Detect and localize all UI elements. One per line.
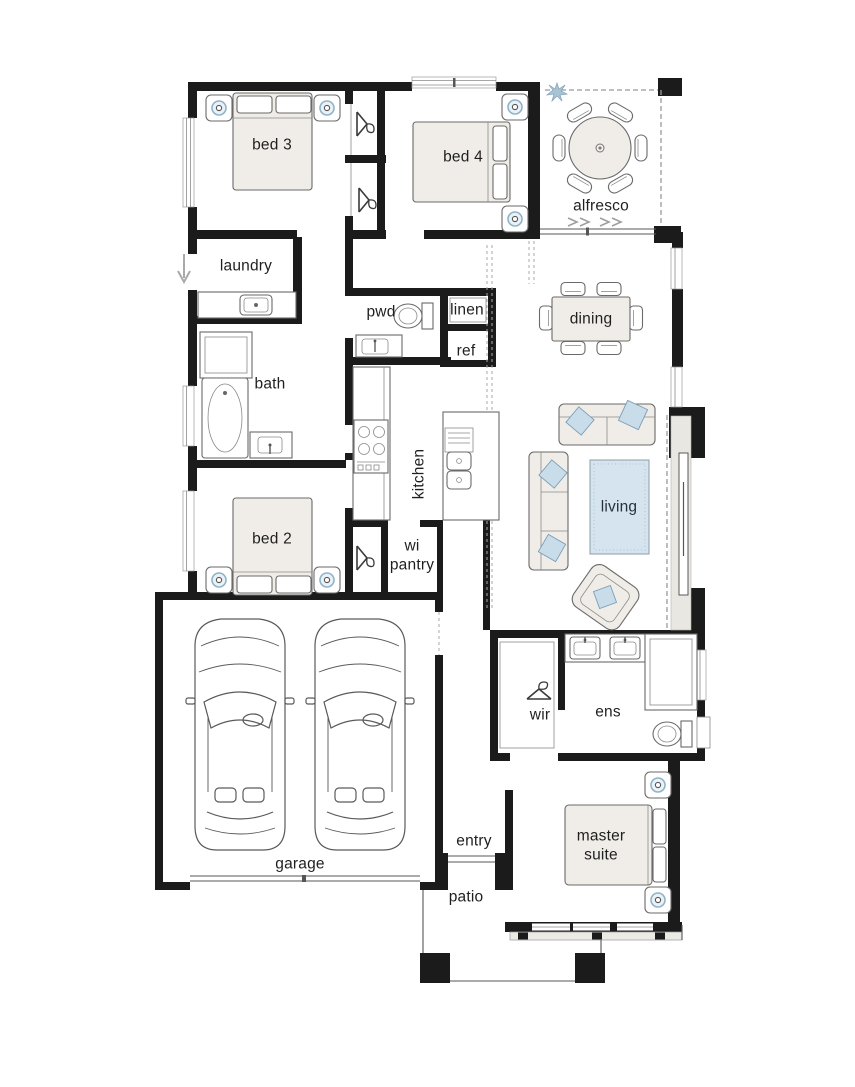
stacker-door [671,416,691,630]
bedside-table [314,567,340,593]
master-suite-line1: master [577,827,626,846]
room-label-laundry: laundry [220,256,272,275]
room-label-dining: dining [570,309,613,328]
bedside-table [645,887,671,913]
room-label-pwd: pwd [366,302,395,321]
room-label-kitchen: kitchen [409,449,428,500]
room-label-ref: ref [457,341,476,360]
chaise-sofa [529,452,568,570]
laundry-bench [198,292,296,318]
bath-tub [202,378,248,458]
armchair [568,561,643,634]
wi-pantry-line1: wi [390,537,434,556]
room-label-living: living [601,497,638,516]
floor-plan: bed 3 bed 4 alfresco laundry pwd linen r… [0,0,855,1087]
room-label-wi-pantry: wi pantry [390,537,434,576]
bath-vanity [250,432,292,458]
room-label-bed2: bed 2 [252,529,292,548]
plant-icon [547,83,567,101]
master-suite-line2: suite [577,846,626,865]
toilet [394,303,433,329]
hanger-icon [357,112,374,136]
bedside-table [502,94,528,120]
down-arrow-icon [178,254,190,282]
ens-vanity [565,634,647,662]
bedside-table [206,567,232,593]
sofa [559,400,655,445]
room-label-entry: entry [456,831,491,850]
room-label-ens: ens [595,702,621,721]
car [306,619,414,850]
patio-post [575,953,605,983]
hanger-icon [359,188,376,212]
car [186,619,294,850]
hanger-icon [527,682,551,699]
room-label-wir: wir [530,705,550,724]
room-label-master-suite: master suite [577,827,626,866]
patio-post [420,953,450,983]
bedside-table [314,95,340,121]
room-label-linen: linen [450,300,484,319]
hanger-icon [357,546,374,570]
room-label-bed4: bed 4 [443,147,483,166]
room-label-alfresco: alfresco [573,196,629,215]
room-label-garage: garage [275,854,324,873]
sink-bowl [447,471,471,489]
room-label-bed3: bed 3 [252,135,292,154]
ens-shower [645,634,697,710]
shower [200,332,252,378]
room-label-patio: patio [449,887,484,906]
toilet [653,717,710,748]
kitchen-island [443,412,499,520]
bedside-table [502,206,528,232]
pwd-vanity [356,335,402,357]
outdoor-dining-set [553,101,647,195]
double-chevron-icon [568,218,621,226]
bedside-table [206,95,232,121]
cooktop [354,420,388,473]
room-label-bath: bath [255,374,286,393]
bedside-table [645,772,671,798]
sink-bowl [447,452,471,470]
wi-pantry-line2: pantry [390,556,434,575]
